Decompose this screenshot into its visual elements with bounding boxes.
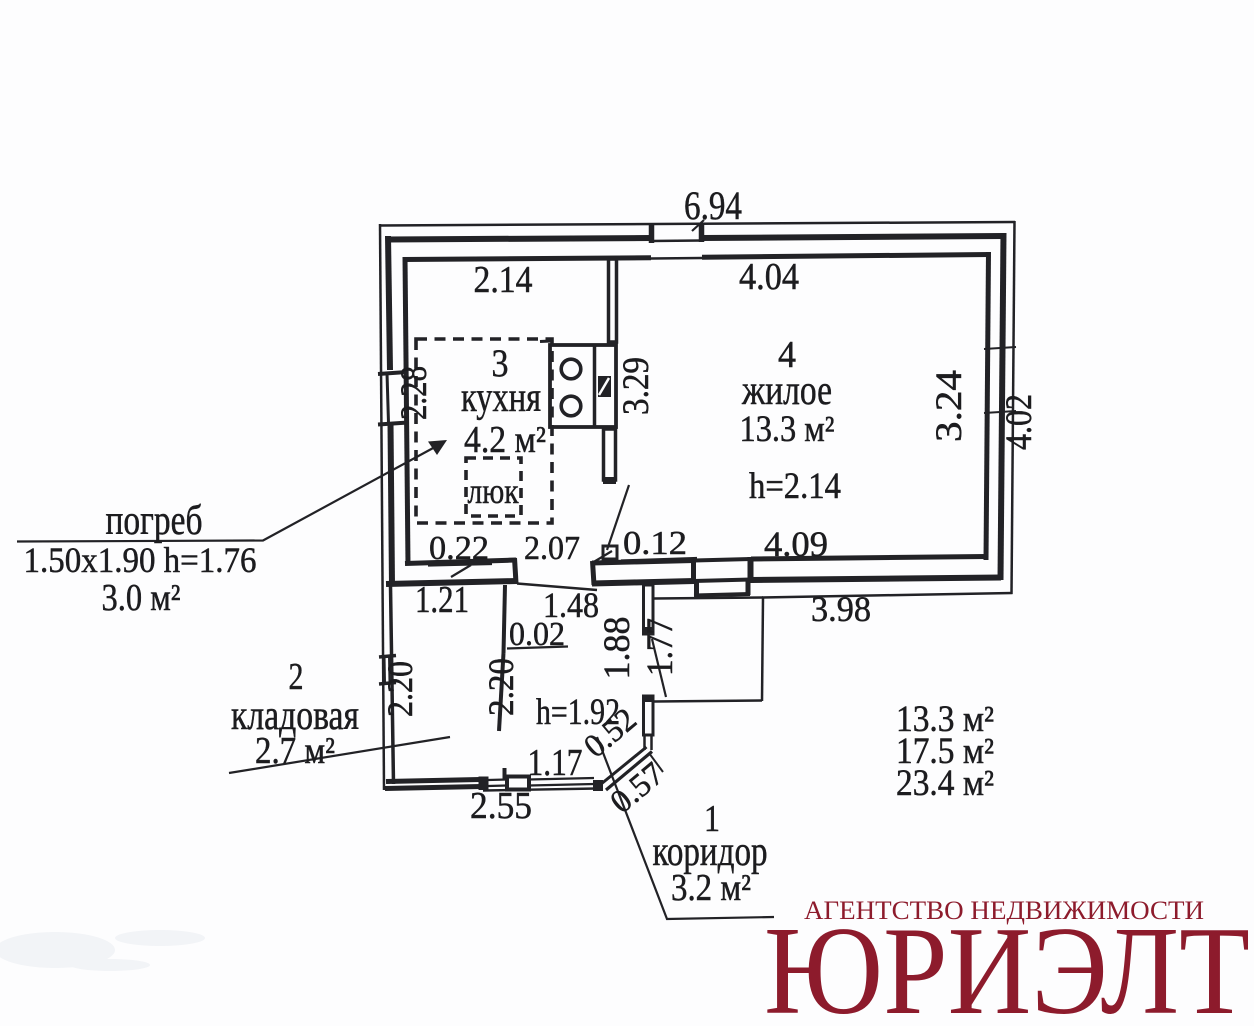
svg-text:3.29: 3.29 <box>616 357 657 415</box>
svg-text:2.20: 2.20 <box>481 658 521 716</box>
svg-text:1.17: 1.17 <box>528 742 583 784</box>
svg-text:2.55: 2.55 <box>470 785 532 827</box>
svg-text:6.94: 6.94 <box>684 183 742 228</box>
svg-text:4.02: 4.02 <box>999 394 1040 450</box>
svg-text:люк: люк <box>468 471 519 511</box>
svg-text:жилое: жилое <box>741 368 832 414</box>
svg-text:2.07: 2.07 <box>524 530 580 567</box>
svg-text:0.22: 0.22 <box>429 530 489 567</box>
svg-text:2.14: 2.14 <box>474 259 533 301</box>
svg-text:1.50х1.90 h=1.76: 1.50х1.90 h=1.76 <box>24 540 257 580</box>
svg-text:1.77: 1.77 <box>640 618 681 676</box>
svg-text:2.7 м²: 2.7 м² <box>255 730 335 772</box>
svg-text:3.98: 3.98 <box>811 589 871 629</box>
svg-text:3.0 м²: 3.0 м² <box>102 577 181 619</box>
svg-text:1.21: 1.21 <box>415 579 469 621</box>
svg-text:4.2 м²: 4.2 м² <box>464 419 546 461</box>
svg-text:13.3 м²: 13.3 м² <box>740 409 835 450</box>
svg-text:погреб: погреб <box>106 498 203 544</box>
svg-text:0.12: 0.12 <box>623 525 687 562</box>
svg-text:2.28: 2.28 <box>394 366 435 420</box>
svg-text:кухня: кухня <box>461 375 541 421</box>
svg-text:h=2.14: h=2.14 <box>749 466 841 507</box>
svg-text:0.57: 0.57 <box>604 756 672 821</box>
svg-text:3.24: 3.24 <box>929 370 970 442</box>
svg-text:2: 2 <box>289 656 304 698</box>
svg-text:23.4 м²: 23.4 м² <box>896 763 994 804</box>
svg-text:0.02: 0.02 <box>509 616 565 653</box>
svg-text:4.04: 4.04 <box>739 256 799 298</box>
svg-text:3.2 м²: 3.2 м² <box>671 867 751 909</box>
svg-text:2.20: 2.20 <box>380 661 420 717</box>
svg-text:4.09: 4.09 <box>764 524 828 564</box>
svg-text:1.88: 1.88 <box>597 617 638 680</box>
svg-text:ЮРИЭЛТ: ЮРИЭЛТ <box>764 902 1250 1026</box>
